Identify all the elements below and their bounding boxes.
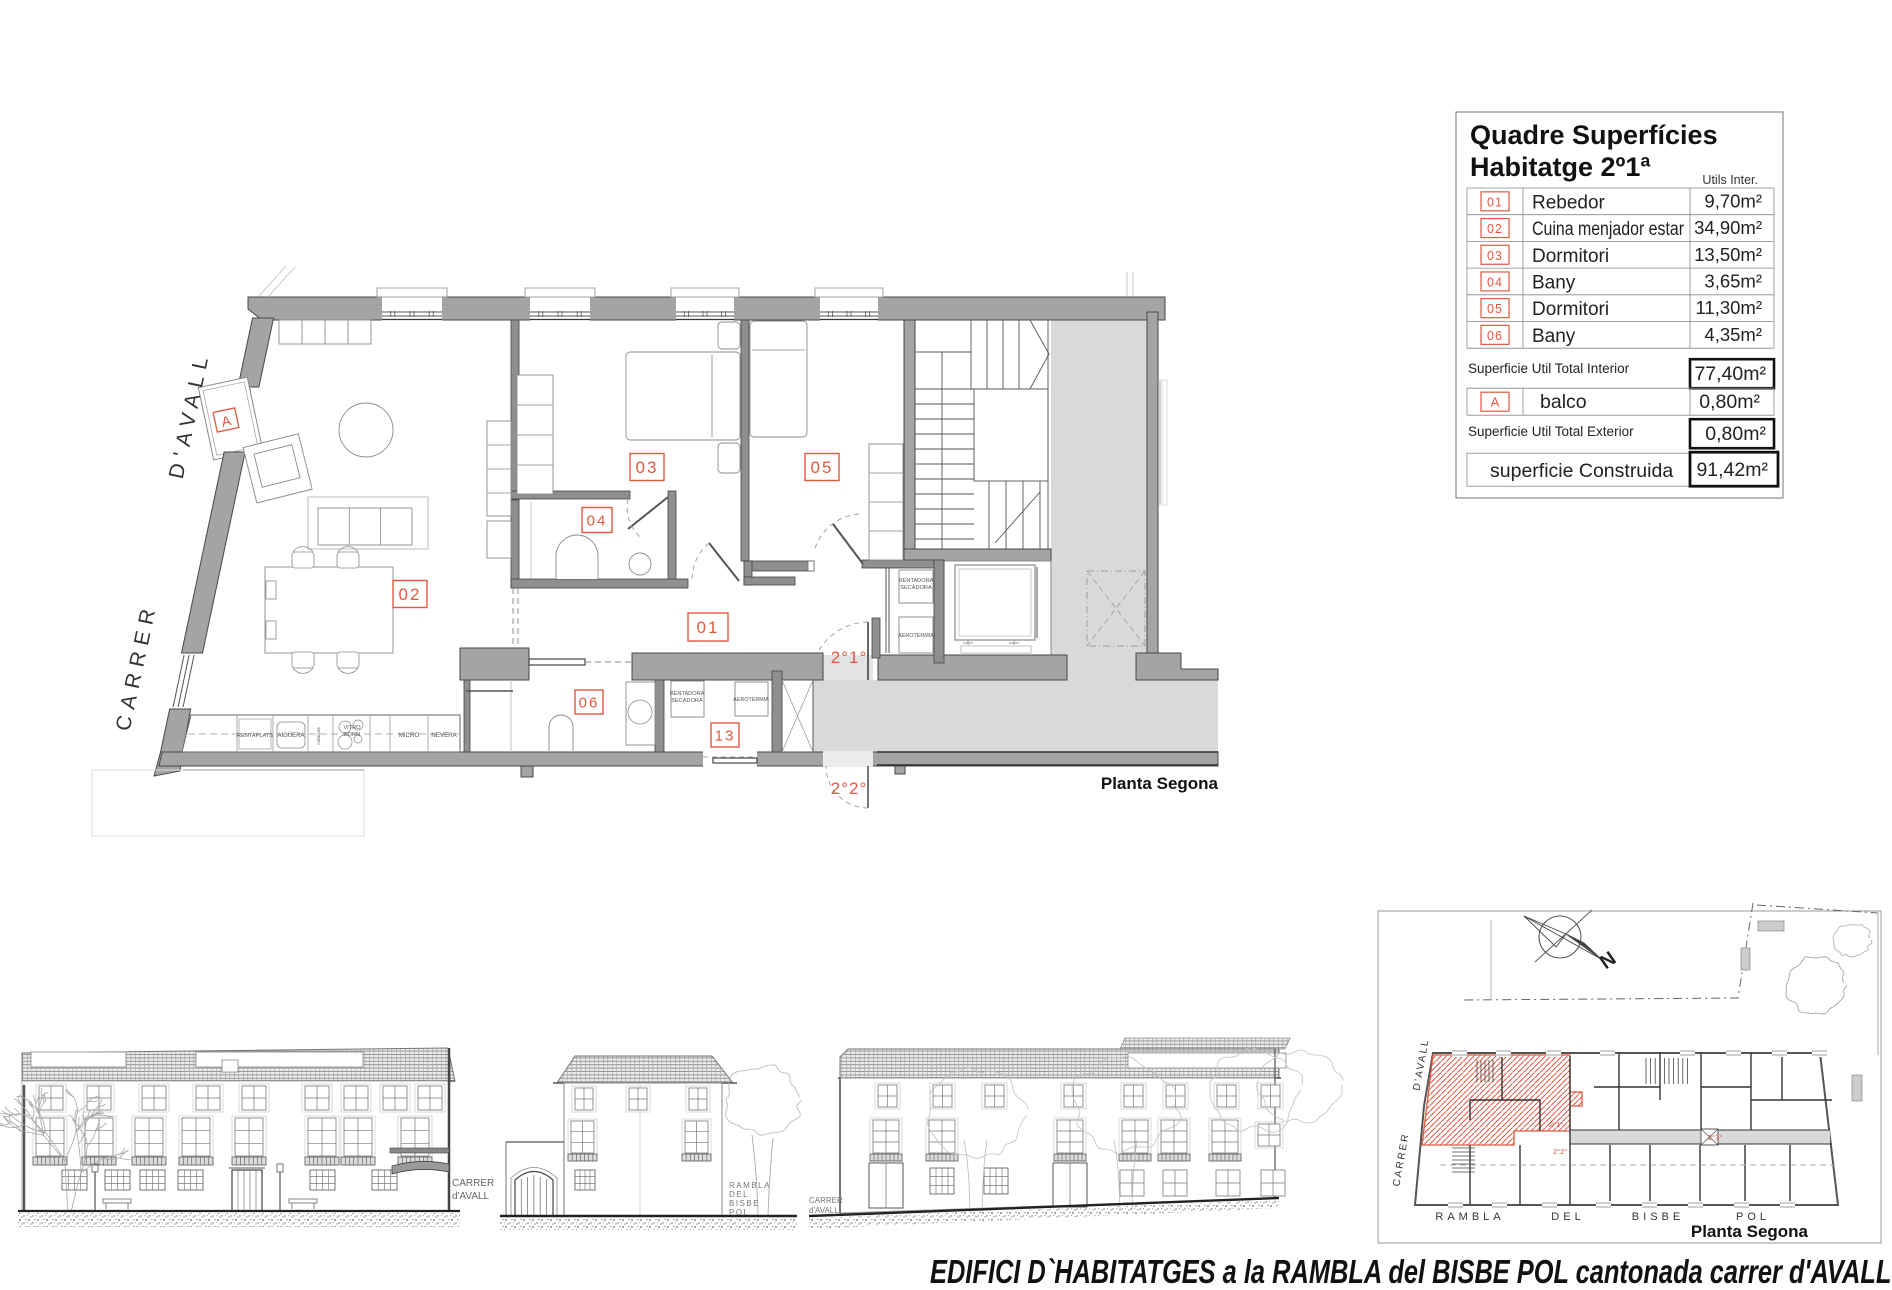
svg-text:02: 02 [1487,222,1503,236]
svg-text:AEROTERMIA: AEROTERMIA [733,697,769,703]
svg-text:SECADORA: SECADORA [671,698,703,704]
svg-text:0,80m²: 0,80m² [1705,423,1766,445]
svg-text:DEL: DEL [1551,1211,1584,1223]
svg-text:77,40m²: 77,40m² [1694,363,1766,385]
svg-text:balco: balco [1540,391,1587,413]
svg-text:9,70m²: 9,70m² [1704,190,1762,211]
svg-text:4,35m²: 4,35m² [1704,324,1762,345]
svg-text:2°2°: 2°2° [831,779,868,798]
svg-text:2°1°: 2°1° [831,648,868,667]
svg-text:2°3°: 2°3° [1708,1133,1722,1142]
svg-text:04: 04 [587,512,608,529]
svg-text:CARRER: CARRER [809,1196,843,1205]
svg-text:11,30m²: 11,30m² [1696,297,1763,318]
svg-text:04: 04 [1487,275,1503,289]
svg-text:2°1°: 2°1° [1549,1120,1563,1129]
svg-text:05: 05 [1487,302,1503,316]
svg-text:34,90m²: 34,90m² [1694,217,1762,238]
svg-text:DEL: DEL [729,1190,749,1199]
svg-text:colaixos: colaixos [316,727,322,745]
svg-text:d'AVALL: d'AVALL [809,1206,839,1215]
svg-text:Utils Inter.: Utils Inter. [1702,173,1758,187]
svg-text:RENTAPLATS: RENTAPLATS [237,733,273,739]
svg-text:13: 13 [715,727,736,744]
svg-text:Dormitori: Dormitori [1532,299,1609,320]
svg-text:Rebedor: Rebedor [1532,192,1606,213]
svg-text:BISBE: BISBE [1632,1211,1684,1223]
svg-text:BISBE: BISBE [729,1199,760,1208]
svg-text:02: 02 [399,585,422,604]
svg-text:Bany: Bany [1532,326,1576,347]
svg-text:CARRER: CARRER [452,1178,494,1189]
svg-text:superficie Construida: superficie Construida [1490,460,1673,482]
svg-text:05: 05 [811,458,834,477]
svg-text:13,50m²: 13,50m² [1694,244,1762,265]
svg-text:d'AVALL: d'AVALL [452,1191,490,1202]
svg-text:0,80m²: 0,80m² [1699,391,1760,413]
svg-text:2°2°: 2°2° [1553,1147,1567,1156]
svg-text:Superficie Util Total Inter: Superficie Util Total Interior [1468,361,1630,376]
svg-text:Bany: Bany [1532,272,1576,293]
svg-text:91,42m²: 91,42m² [1696,459,1768,481]
svg-text:VITRO: VITRO [343,725,361,731]
svg-text:RENTADORA: RENTADORA [899,578,934,584]
svg-text:Planta Segona: Planta Segona [1691,1222,1809,1241]
svg-text:Dormitori: Dormitori [1532,246,1609,267]
svg-text:MICRO: MICRO [399,732,420,739]
svg-text:06: 06 [579,694,600,711]
svg-text:A: A [1491,395,1500,410]
svg-text:Planta Segona: Planta Segona [1101,774,1219,793]
svg-text:AEROTERMIA: AEROTERMIA [898,633,934,639]
svg-text:SECADORA: SECADORA [900,585,932,591]
svg-text:3,65m²: 3,65m² [1704,270,1762,291]
svg-text:POL: POL [729,1208,750,1217]
svg-text:Habitatge 2º1ª: Habitatge 2º1ª [1470,152,1650,182]
svg-text:RAMBLA: RAMBLA [729,1181,771,1190]
svg-text:03: 03 [1487,249,1503,263]
svg-text:03: 03 [636,458,659,477]
svg-text:01: 01 [697,618,720,637]
svg-text:01: 01 [1487,195,1503,209]
svg-text:NEVERA: NEVERA [431,732,457,739]
svg-text:FORN: FORN [344,732,360,738]
svg-text:AIGÜERA: AIGÜERA [277,732,304,739]
svg-text:RENTADORA: RENTADORA [670,691,705,697]
svg-text:CARRER: CARRER [112,600,162,733]
svg-text:RAMBLA: RAMBLA [1435,1211,1504,1223]
svg-text:Superficie Util Total Exter: Superficie Util Total Exterior [1468,424,1634,439]
svg-text:06: 06 [1487,329,1503,343]
svg-text:Cuina menjador estar: Cuina menjador estar [1532,219,1685,240]
svg-text:Quadre Superfícies: Quadre Superfícies [1470,120,1718,150]
